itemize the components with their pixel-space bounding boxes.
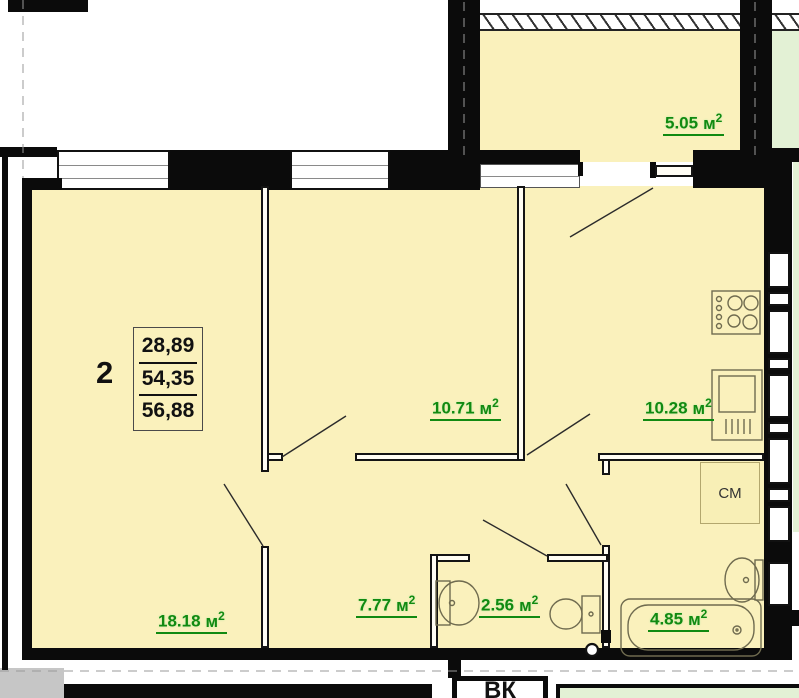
window-box [768, 252, 790, 288]
kitchen-area-label: 10.28м2 [643, 397, 714, 421]
area-unit-sup: 2 [532, 593, 539, 607]
stair-block [0, 668, 64, 698]
area-summary-box: 28,89 54,35 56,88 [133, 327, 203, 431]
vent-shaft-box: ВК [452, 676, 548, 698]
neighbor-railing [772, 13, 799, 31]
living-area-value: 28,89 [139, 331, 197, 363]
wall-exterior-left [22, 178, 32, 660]
area-value: 18.18 [158, 612, 201, 631]
window-box [768, 374, 790, 418]
area-value: 7.77 [358, 596, 391, 615]
window-box [768, 562, 790, 606]
area-value: 10.71 [432, 399, 475, 418]
area-unit: м [693, 399, 706, 418]
wall-pier [390, 150, 480, 190]
wall-pier [170, 150, 290, 190]
window-bedroom [290, 150, 390, 190]
partition-bedroom-hall [355, 453, 525, 461]
neighbor-balcony-right [793, 162, 799, 532]
partition-living-room [261, 186, 269, 472]
window-box [768, 506, 790, 542]
wall [693, 150, 772, 188]
area-unit: м [480, 399, 493, 418]
washing-machine-label: СМ [718, 485, 741, 502]
partition-stub [602, 459, 610, 475]
partition-bedroom-kitchen [517, 186, 525, 461]
kitchen-window-sill [480, 164, 580, 188]
area-unit-sup: 2 [409, 593, 416, 607]
total-area-value: 56,88 [139, 396, 197, 426]
wall-exterior-bottom [22, 648, 782, 660]
window-box [768, 292, 790, 306]
area-unit: м [396, 596, 409, 615]
apartment-number: 2 [96, 355, 113, 391]
area-value: 2.56 [481, 596, 514, 615]
neighbor-wall-bottom [64, 684, 432, 698]
partition-living-room-lower [261, 546, 269, 648]
living-room-area-label: 18.18м2 [156, 610, 227, 634]
area-value: 4.85 [650, 610, 683, 629]
window-box [768, 438, 790, 484]
area-unit: м [206, 612, 219, 631]
window-box [768, 422, 790, 434]
area-unit-sup: 2 [492, 396, 499, 410]
area-value: 10.28 [645, 399, 688, 418]
area-unit: м [688, 610, 701, 629]
window-box [768, 488, 790, 502]
vent-shaft-label: ВК [484, 677, 516, 698]
neighbor-area-bottom [556, 684, 799, 698]
wall [601, 630, 611, 643]
partition-kitchen-bathroom [598, 453, 764, 461]
column-right [740, 0, 772, 162]
partition-wc-top [547, 554, 608, 562]
balcony-floor [480, 30, 740, 162]
wall [0, 147, 57, 157]
area-unit-sup: 2 [218, 609, 225, 623]
area-unit: м [703, 114, 716, 133]
area-unit-sup: 2 [716, 111, 723, 125]
balcony-area-label: 5.05м2 [663, 112, 724, 136]
usable-area-value: 54,35 [139, 364, 197, 396]
balcony-railing [480, 13, 740, 31]
window-box [768, 310, 790, 354]
neighbor-wall-left [2, 157, 8, 670]
bedroom-area-label: 10.71м2 [430, 397, 501, 421]
area-unit: м [519, 596, 532, 615]
partition-wc-left [430, 554, 438, 648]
hall-area-label: 7.77м2 [356, 594, 417, 618]
neighbor-wall-top [8, 0, 88, 12]
wc-area-label: 2.56м2 [479, 594, 540, 618]
wall [480, 150, 580, 164]
balcony-door-leaf [655, 165, 693, 177]
area-unit-sup: 2 [705, 396, 712, 410]
window-box [768, 358, 790, 370]
area-unit-sup: 2 [701, 607, 708, 621]
column-left [448, 0, 480, 162]
wall [784, 610, 799, 626]
window-living-room [57, 150, 170, 190]
area-value: 5.05 [665, 114, 698, 133]
floor-plan: 2 28,89 54,35 56,88 СМ ВК 5.05м2 10.71м2… [0, 0, 799, 698]
neighbor-balcony-top-right [772, 31, 799, 148]
door-jamb [578, 162, 583, 176]
partition-stub [267, 453, 283, 461]
washing-machine-box: СМ [700, 462, 760, 524]
bathroom-area-label: 4.85м2 [648, 608, 709, 632]
